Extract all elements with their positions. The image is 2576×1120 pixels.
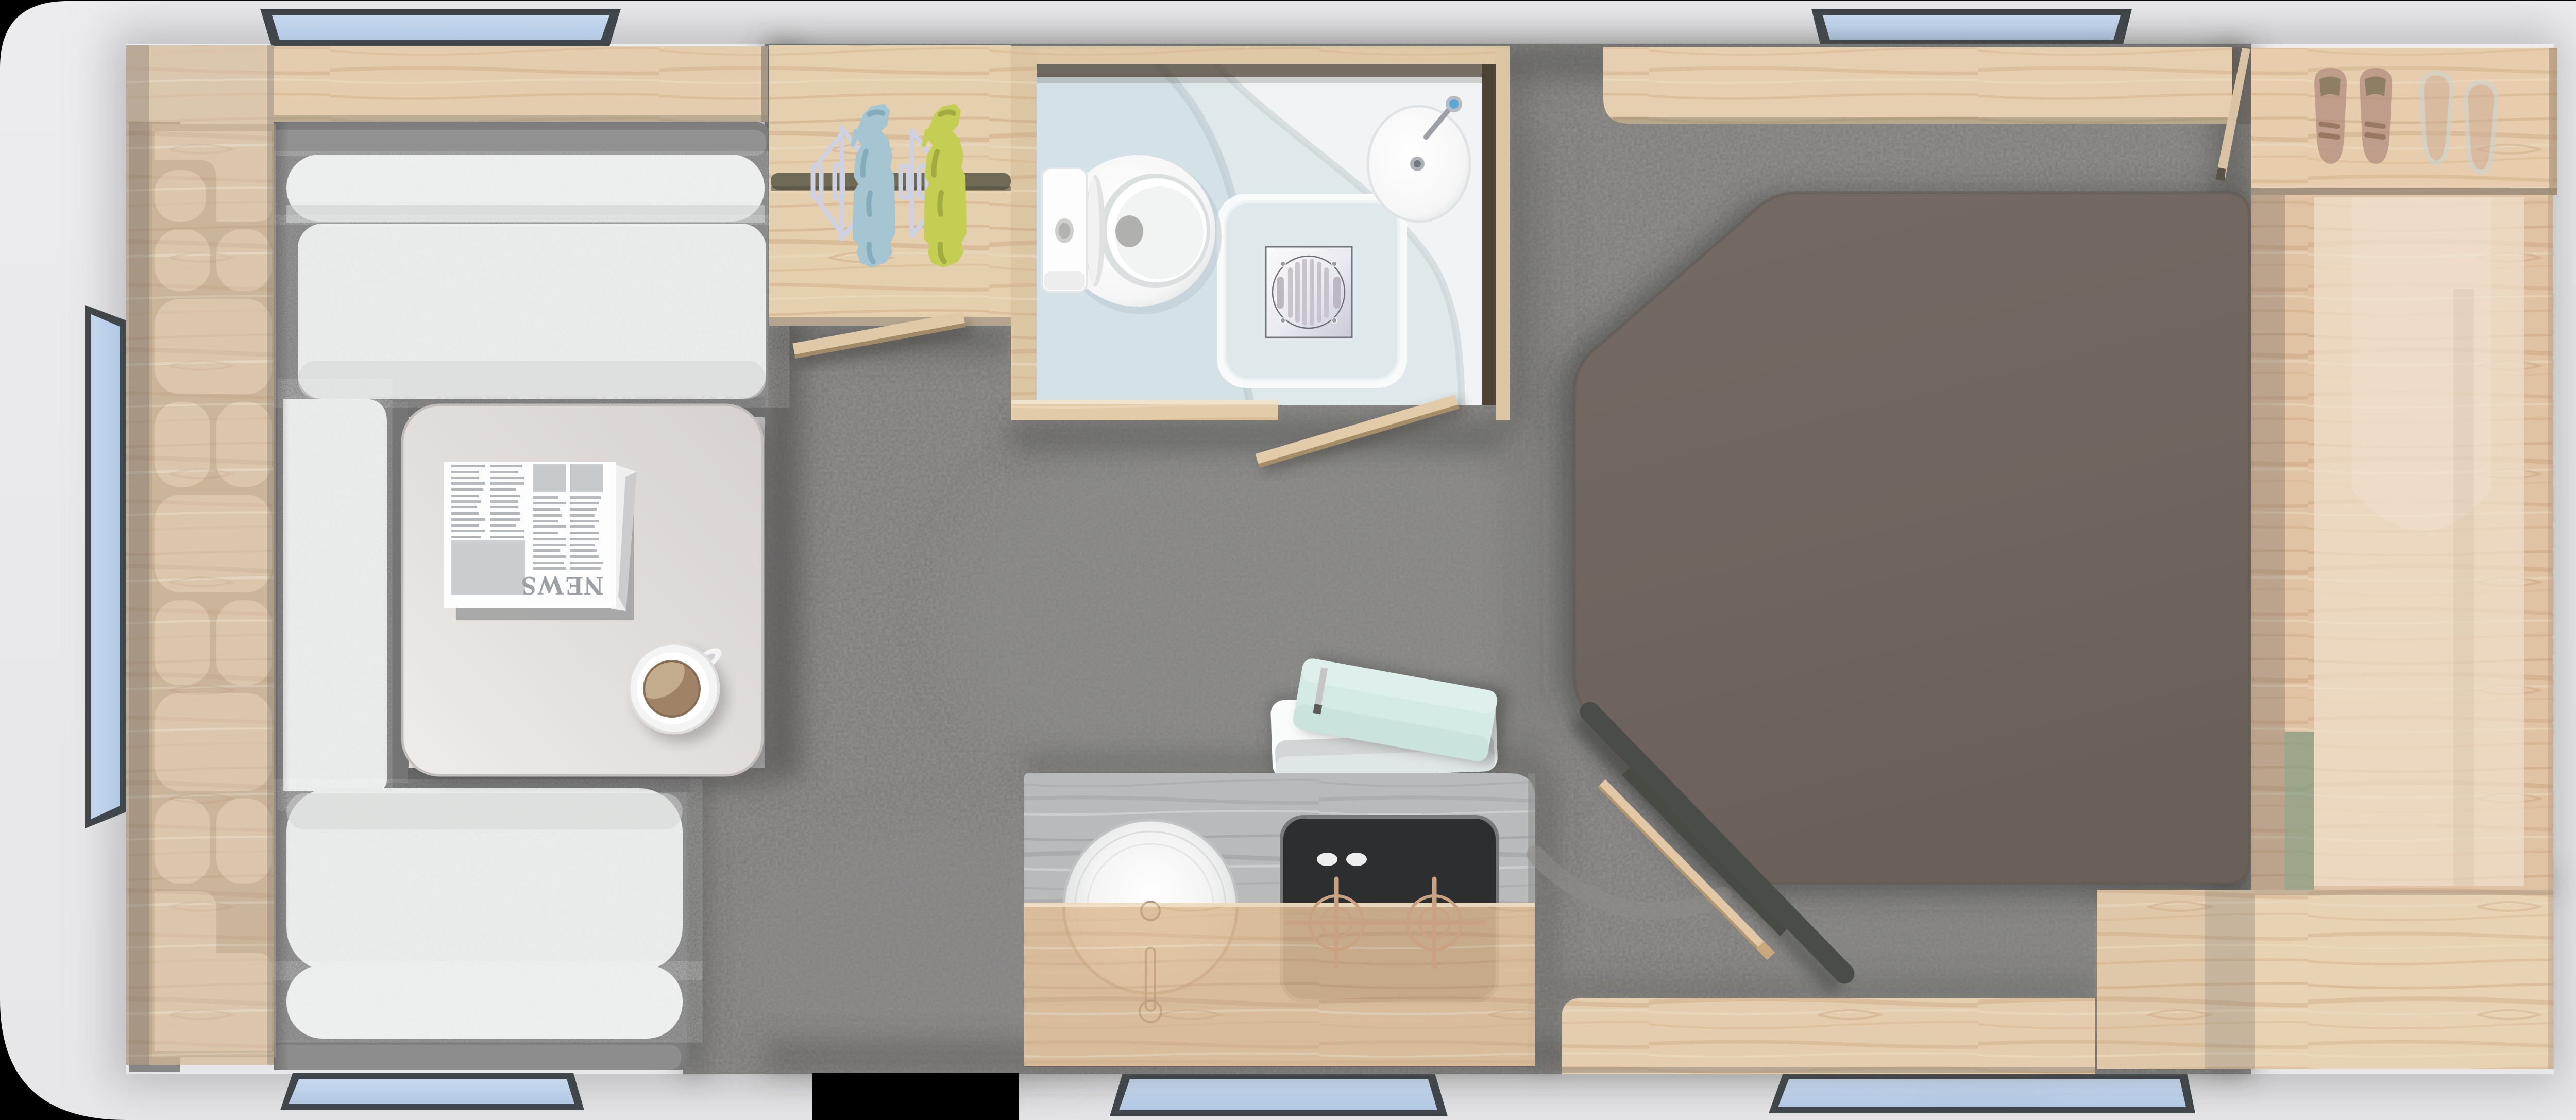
svg-text:NEWS: NEWS: [520, 571, 603, 600]
